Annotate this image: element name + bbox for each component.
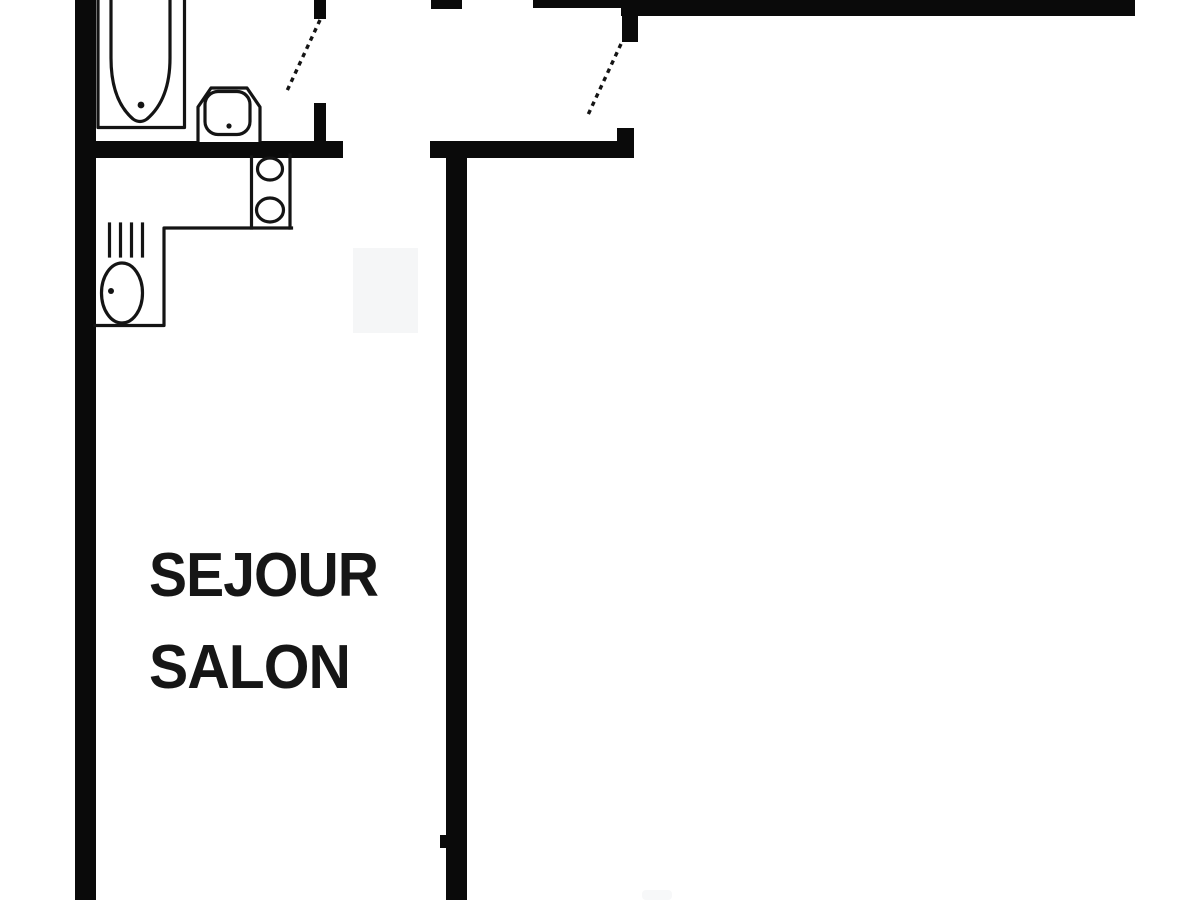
room-label-line2: SALON [149, 633, 350, 702]
wall-top-thin [533, 0, 622, 8]
bathroom-door [286, 20, 320, 93]
floor-plan-svg: SEJOUR SALON [0, 0, 1200, 900]
wall-bathroom-door-jamb-top [314, 0, 326, 19]
wall-top-exterior [621, 0, 1135, 16]
stove-burners-icon [252, 155, 291, 228]
burner-bottom [257, 198, 284, 222]
washbasin-icon [198, 88, 260, 142]
wall-room-divider [446, 141, 467, 900]
wall-bathroom-door-jamb-bottom [314, 103, 326, 158]
vent-hatch-icon [110, 224, 143, 256]
wall-entry-door-jamb [622, 16, 638, 42]
bathtub-drain [138, 102, 145, 109]
burner-top [258, 158, 283, 180]
wall-bathroom-south [75, 141, 343, 158]
wall-left-exterior [75, 0, 96, 900]
room-label-sejour-salon: SEJOUR SALON [149, 541, 378, 702]
door-swing-icon [286, 20, 320, 93]
sink-bowl [102, 263, 143, 323]
washbasin-drain [226, 123, 231, 128]
faint-artifact-bottom [642, 890, 672, 900]
floor-plan: SEJOUR SALON [0, 0, 1200, 900]
room-label-line1: SEJOUR [149, 541, 378, 610]
wall-top-fragment [431, 0, 462, 9]
wall-hall-south-jamb [617, 128, 634, 142]
kitchen-sink-icon [102, 263, 143, 323]
counter-outline [95, 228, 292, 326]
bathtub-icon [98, 0, 185, 128]
faint-artifact-patch [353, 248, 418, 333]
wall-divider-notch [440, 835, 448, 848]
door-swing-icon [587, 44, 621, 117]
sink-drain [108, 288, 114, 294]
kitchen-counter [95, 228, 292, 326]
entry-door [587, 44, 621, 117]
